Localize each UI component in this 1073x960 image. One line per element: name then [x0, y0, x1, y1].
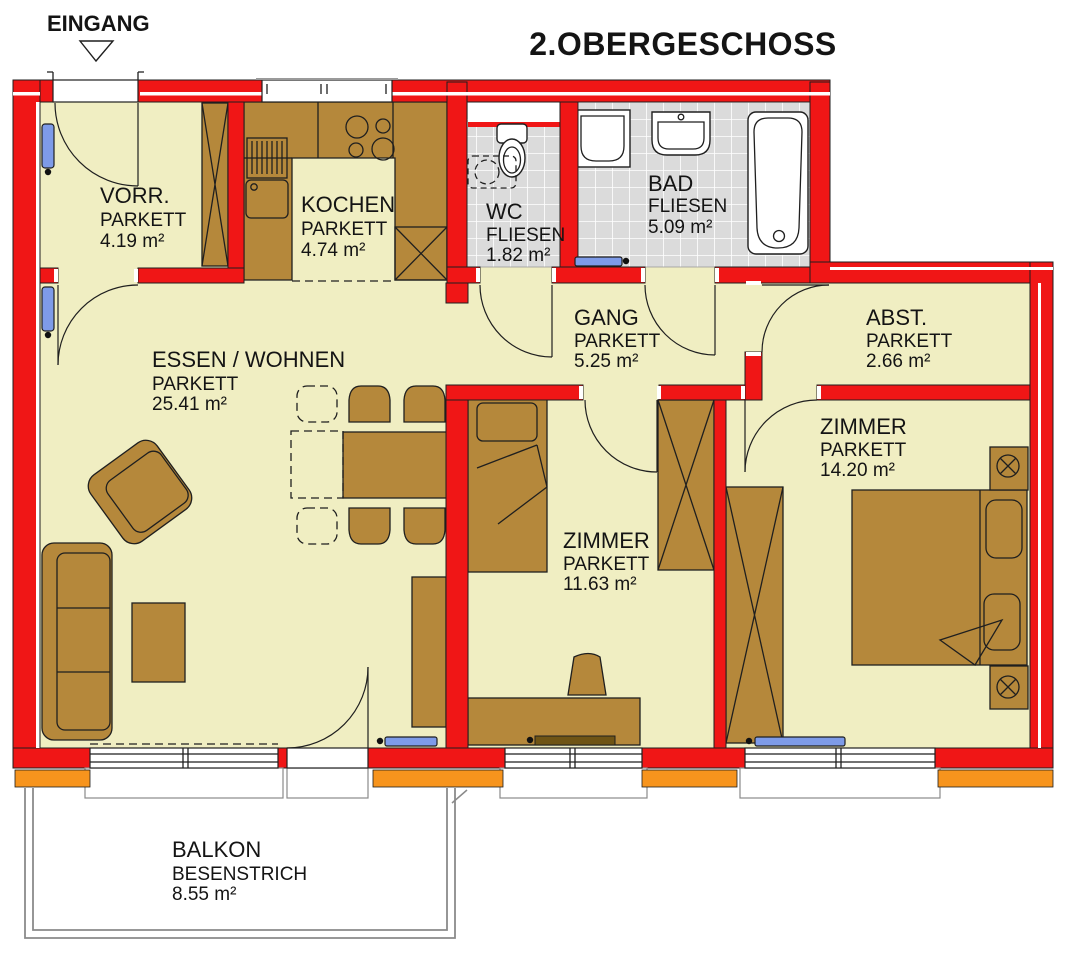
- entrance-marker: EINGANG: [47, 11, 150, 61]
- wall-mid: [659, 385, 745, 400]
- radiator: [42, 287, 54, 331]
- wall-zimmer-divider: [714, 400, 726, 748]
- balcony-railing-outer: [25, 788, 455, 938]
- wall-gang-north: [447, 267, 480, 283]
- wall-bottom: [935, 748, 1053, 768]
- wall-vorraum-south: [138, 268, 244, 283]
- wall-seam: [140, 92, 830, 96]
- room-name: ABST.: [866, 305, 927, 330]
- bedroom2-wardrobe: [726, 487, 783, 743]
- radiator: [575, 257, 622, 266]
- room-floor: PARKETT: [100, 210, 187, 231]
- room-floor: FLIESEN: [486, 225, 565, 246]
- sill-box: [500, 768, 647, 798]
- sill-orange: [642, 770, 737, 787]
- room-area: 4.19 m²: [100, 231, 164, 252]
- dining-chair: [404, 508, 445, 544]
- bathtub: [748, 112, 808, 254]
- kitchen-window: [256, 79, 398, 102]
- dining-chair: [349, 508, 390, 544]
- sideboard: [412, 577, 446, 727]
- room-floor: PARKETT: [152, 374, 239, 395]
- room-area: 1.82 m²: [486, 245, 550, 266]
- page-title: 2.OBERGESCHOSS: [529, 26, 837, 62]
- coffee-table: [132, 603, 185, 682]
- entrance-arrow-icon: [80, 41, 113, 61]
- wall-seam: [1038, 283, 1041, 748]
- room-name: ZIMMER: [820, 414, 907, 439]
- room-floor: PARKETT: [866, 331, 953, 352]
- entrance-opening: [53, 80, 138, 102]
- wall-seam: [36, 102, 40, 748]
- room-floor: PARKETT: [820, 440, 907, 461]
- room-name: KOCHEN: [301, 192, 395, 217]
- double-bed: [852, 490, 1027, 665]
- room-floor: PARKETT: [301, 219, 388, 240]
- room-floor: PARKETT: [563, 554, 650, 575]
- dining-chair: [404, 386, 445, 422]
- wall-bottom: [13, 748, 90, 768]
- nightstand-top: [990, 447, 1028, 490]
- bedroom1-window: [505, 748, 642, 768]
- single-bed: [468, 395, 547, 572]
- room-name: BALKON: [172, 837, 261, 862]
- wall-abst-north: [810, 262, 1053, 283]
- wall-wohnen-zimmer: [446, 385, 468, 748]
- wall-bottom: [368, 748, 505, 768]
- radiator-valve: [623, 258, 629, 264]
- room-floor: PARKETT: [574, 331, 661, 352]
- room-area: 2.66 m²: [866, 351, 930, 372]
- radiator-valve: [45, 332, 51, 338]
- wall-abst-west: [745, 352, 762, 400]
- desk-chair: [568, 654, 606, 696]
- sill-box: [740, 768, 940, 798]
- wall-vorraum-kitchen: [228, 102, 244, 283]
- shower: [575, 110, 630, 167]
- radiator: [385, 737, 437, 746]
- bedroom2-window: [745, 748, 935, 768]
- radiator: [42, 124, 54, 168]
- dining-chair: [349, 386, 390, 422]
- living-room-window: [90, 748, 278, 768]
- vorraum-wardrobe: [202, 103, 228, 266]
- radiator-valve: [527, 737, 533, 743]
- dining-table: [343, 432, 447, 498]
- room-name: WC: [486, 199, 523, 224]
- balcony-door-threshold: [287, 748, 368, 768]
- wall-bad-east: [810, 82, 830, 283]
- room-name: GANG: [574, 305, 639, 330]
- wall-left: [13, 80, 40, 768]
- wall-top: [138, 80, 262, 102]
- room-area: 5.09 m²: [648, 217, 712, 238]
- room-area: 8.55 m²: [172, 884, 236, 905]
- room-floor: BESENSTRICH: [172, 864, 307, 885]
- floor-plan-page: 2.OBERGESCHOSS EINGANG VORR. PARKETT 4.1…: [0, 0, 1073, 960]
- radiator: [535, 736, 615, 745]
- nightstand-bottom: [990, 666, 1028, 709]
- room-area: 14.20 m²: [820, 460, 895, 481]
- sill-orange: [938, 770, 1053, 787]
- wall-mid: [817, 385, 1030, 400]
- room-name: ZIMMER: [563, 528, 650, 553]
- sill-box: [287, 768, 368, 798]
- entrance-jamb-ticks: [47, 72, 144, 80]
- room-name: BAD: [648, 171, 693, 196]
- wall-stub: [446, 283, 468, 303]
- radiator: [755, 737, 845, 746]
- wall-seam: [830, 267, 1053, 270]
- toilet-bowl: [499, 139, 525, 177]
- sill-orange: [15, 770, 90, 787]
- wc-niche: [468, 101, 560, 122]
- wall-seam: [13, 92, 40, 96]
- sofa: [42, 543, 112, 740]
- room-area: 4.74 m²: [301, 240, 365, 261]
- wall-mid: [446, 385, 583, 400]
- radiator-valve: [746, 738, 752, 744]
- radiator-valve: [45, 169, 51, 175]
- room-floor: FLIESEN: [648, 196, 727, 217]
- room-area: 25.41 m²: [152, 394, 227, 415]
- wall-bottom: [642, 748, 745, 768]
- floor-plan-drawing: 2.OBERGESCHOSS EINGANG VORR. PARKETT 4.1…: [0, 0, 1073, 960]
- balcony: [25, 788, 467, 938]
- room-area: 5.25 m²: [574, 351, 638, 372]
- room-label-zimmer2: ZIMMER PARKETT 14.20 m²: [820, 414, 907, 481]
- wall-gang-north: [552, 267, 645, 283]
- sill-orange: [373, 770, 503, 787]
- bedroom1-wardrobe: [658, 400, 714, 570]
- entrance-label: EINGANG: [47, 11, 150, 36]
- room-name: ESSEN / WOHNEN: [152, 347, 345, 372]
- room-name: VORR.: [100, 183, 170, 208]
- window-sills: [15, 768, 1053, 798]
- room-label-balkon: BALKON BESENSTRICH 8.55 m²: [172, 837, 307, 905]
- wall-bottom: [278, 748, 287, 768]
- radiator-valve: [377, 738, 383, 744]
- sill-box: [85, 768, 283, 798]
- room-area: 11.63 m²: [563, 574, 637, 595]
- wall-right: [1030, 262, 1053, 760]
